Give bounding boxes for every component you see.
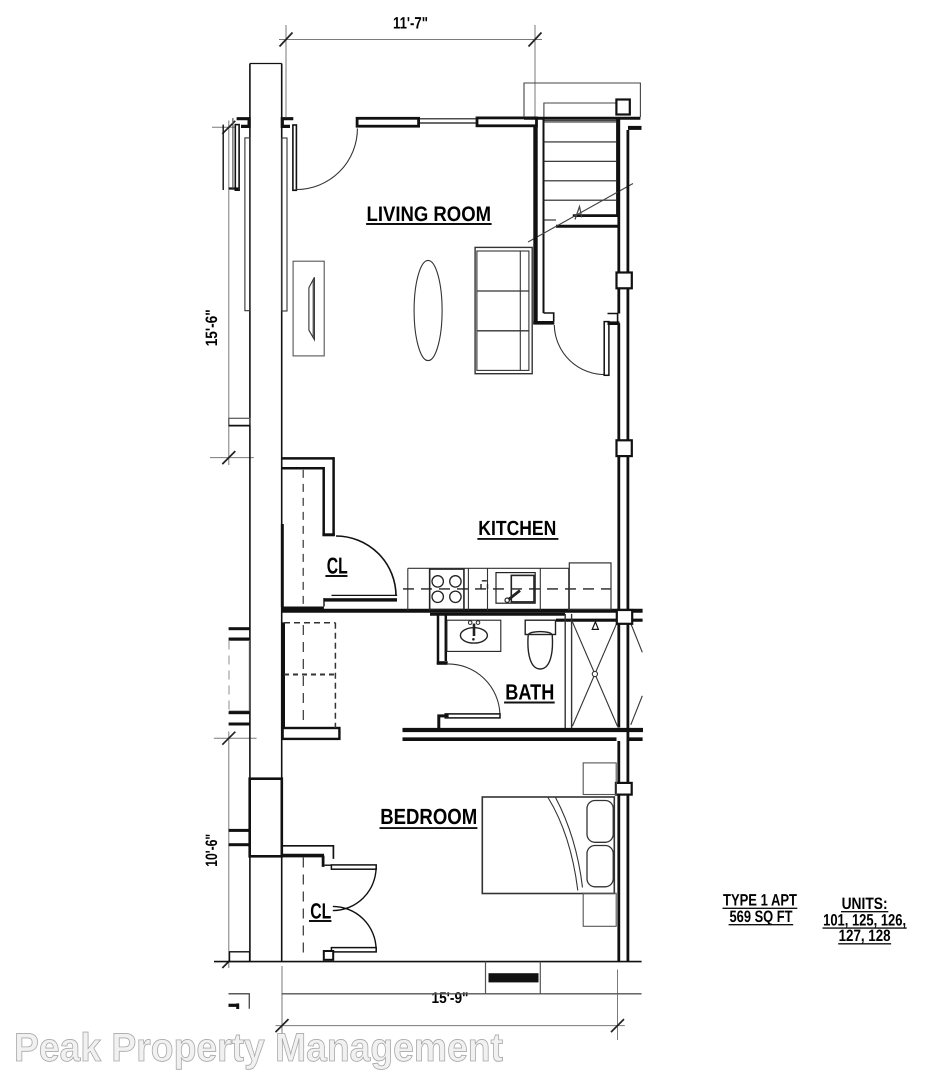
svg-text:10'-6": 10'-6" [203,834,221,867]
svg-text:15'-9": 15'-9" [432,990,469,1007]
svg-text:CL: CL [327,553,348,579]
svg-text:Peak Property Management: Peak Property Management [14,1026,503,1070]
svg-text:BEDROOM: BEDROOM [380,804,477,829]
svg-text:CL: CL [310,899,331,924]
svg-text:15'-6": 15'-6" [203,309,221,346]
svg-text:UNITS:: UNITS: [842,895,888,913]
svg-text:569 SQ FT: 569 SQ FT [730,908,793,926]
svg-text:LIVING ROOM: LIVING ROOM [367,203,492,226]
svg-text:127, 128: 127, 128 [839,927,891,945]
svg-text:KITCHEN: KITCHEN [478,517,556,540]
svg-text:BATH: BATH [505,679,554,704]
svg-text:11'-7": 11'-7" [393,15,428,33]
svg-text:TYPE 1 APT: TYPE 1 APT [723,892,797,910]
